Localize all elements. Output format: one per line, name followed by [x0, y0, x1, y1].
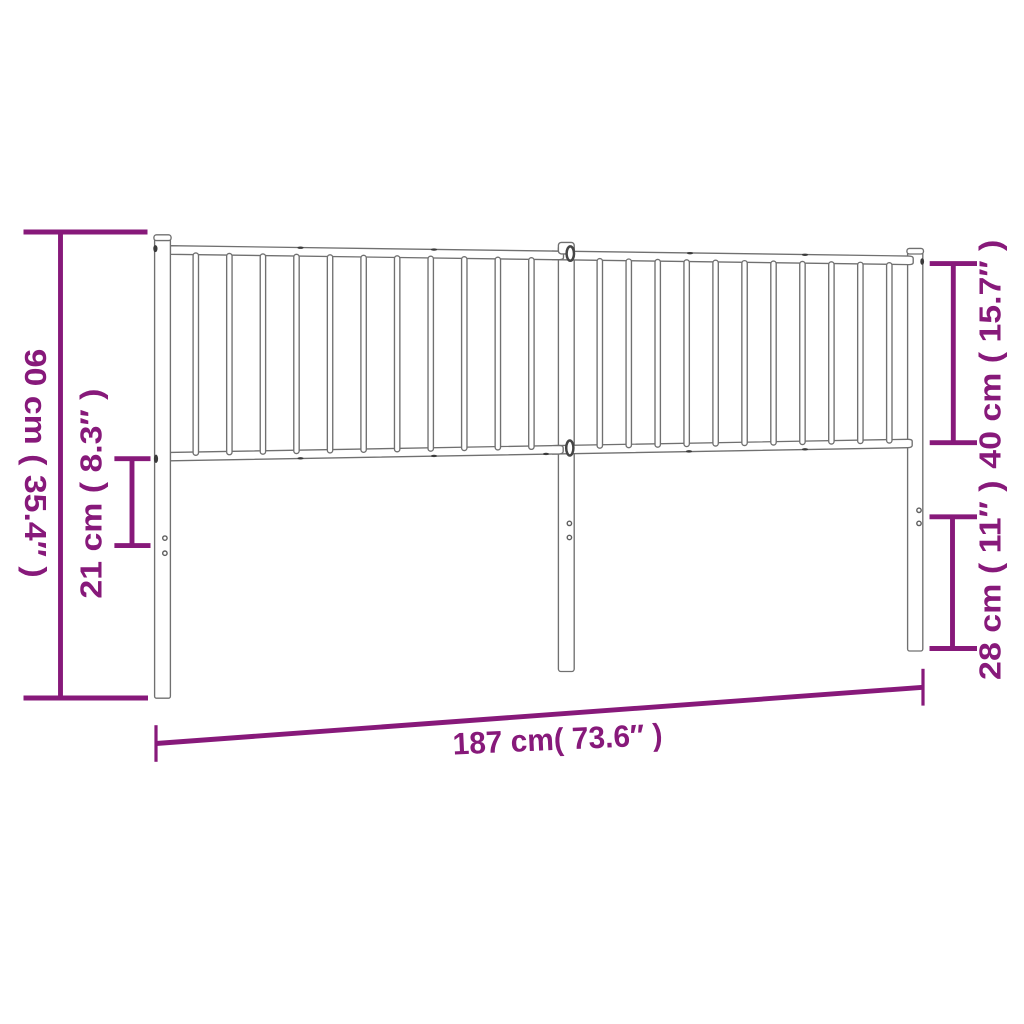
svg-text:40 cm ( 15.7″ ): 40 cm ( 15.7″ )	[972, 240, 1007, 469]
svg-text:90 cm ( 35.4″ ): 90 cm ( 35.4″ )	[18, 349, 53, 578]
svg-text:21 cm ( 8.3″ ): 21 cm ( 8.3″ )	[73, 389, 108, 599]
svg-text:28 cm ( 11″ ): 28 cm ( 11″ )	[972, 480, 1007, 680]
